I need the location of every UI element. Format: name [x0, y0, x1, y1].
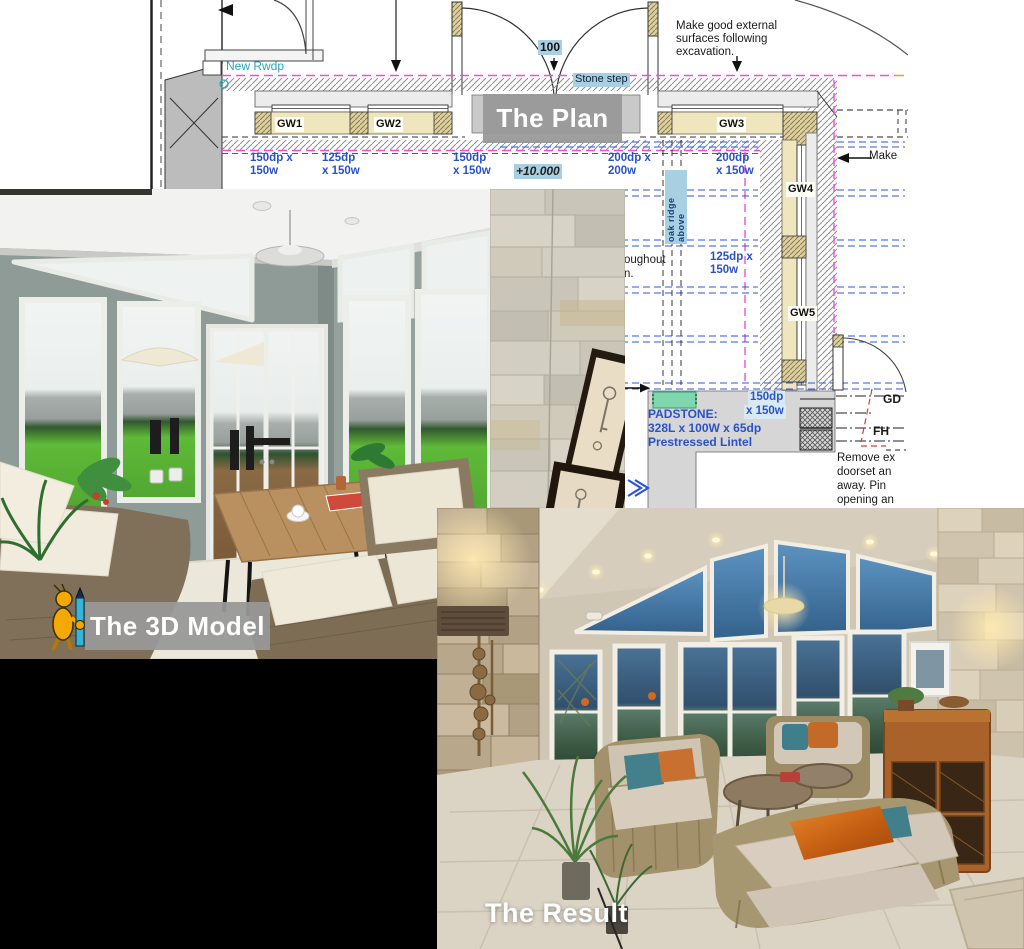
window-label-gw1: GW1: [275, 117, 304, 132]
result-photo: The Result: [437, 508, 1024, 949]
label-fh: FH: [873, 425, 889, 438]
note-partial-2: n.: [624, 268, 634, 281]
project-collage: New Rwdp Make good external surfaces fol…: [0, 0, 1024, 949]
window-label-gw4: GW4: [786, 182, 815, 197]
plan-caption: The Plan: [483, 94, 622, 143]
note-make-partial: Make: [869, 150, 897, 163]
note-padstone-1: PADSTONE:: [648, 408, 718, 421]
dim-200dp-200w: 200dp x 200w: [608, 152, 651, 178]
window-label-gw3: GW3: [717, 117, 746, 132]
mascot-pencil-icon: [44, 584, 90, 656]
note-padstone-2: 328L x 100W x 65dp: [648, 422, 761, 435]
plan-caption-label: The Plan: [496, 103, 608, 134]
window-label-gw5: GW5: [788, 306, 817, 321]
dim-150dp: 150dp: [748, 391, 785, 405]
model-caption-label: The 3D Model: [90, 611, 265, 642]
result-photo-art: [437, 508, 1024, 949]
window-label-gw2: GW2: [374, 117, 403, 132]
stone-pillar-photo: [490, 189, 625, 508]
dim-200dp-150w: 200dp x 150w: [716, 152, 754, 178]
model-caption: The 3D Model: [85, 602, 270, 650]
dim-150dp-150w-2: 150dp x 150w: [453, 152, 491, 178]
dim-125dp-150w-2: 125dp x 150w: [710, 251, 753, 277]
dim-x150w: x 150w: [744, 405, 786, 419]
dim-125dp-150w: 125dp x 150w: [322, 152, 360, 178]
note-new-rwdp: New Rwdp: [226, 60, 284, 73]
level-annotation: +10.000: [514, 164, 562, 179]
note-remove: Remove ex doorset an away. Pin opening a…: [837, 451, 908, 507]
note-partial-1: oughout: [624, 254, 666, 267]
dim-150dp-150w: 150dp x 150w: [250, 152, 293, 178]
stone-pillar-art: [490, 189, 625, 508]
black-background-area: [0, 659, 437, 949]
note-padstone-3: Prestressed Lintel: [648, 436, 752, 449]
note-make-good: Make good external surfaces following ex…: [676, 20, 846, 59]
label-gd: GD: [883, 393, 901, 406]
note-oak-ridge: oak ridge above: [665, 170, 687, 244]
dim-100-chip: 100: [538, 40, 562, 55]
result-caption: The Result: [485, 898, 628, 929]
note-stone-step: Stone step: [573, 73, 630, 87]
